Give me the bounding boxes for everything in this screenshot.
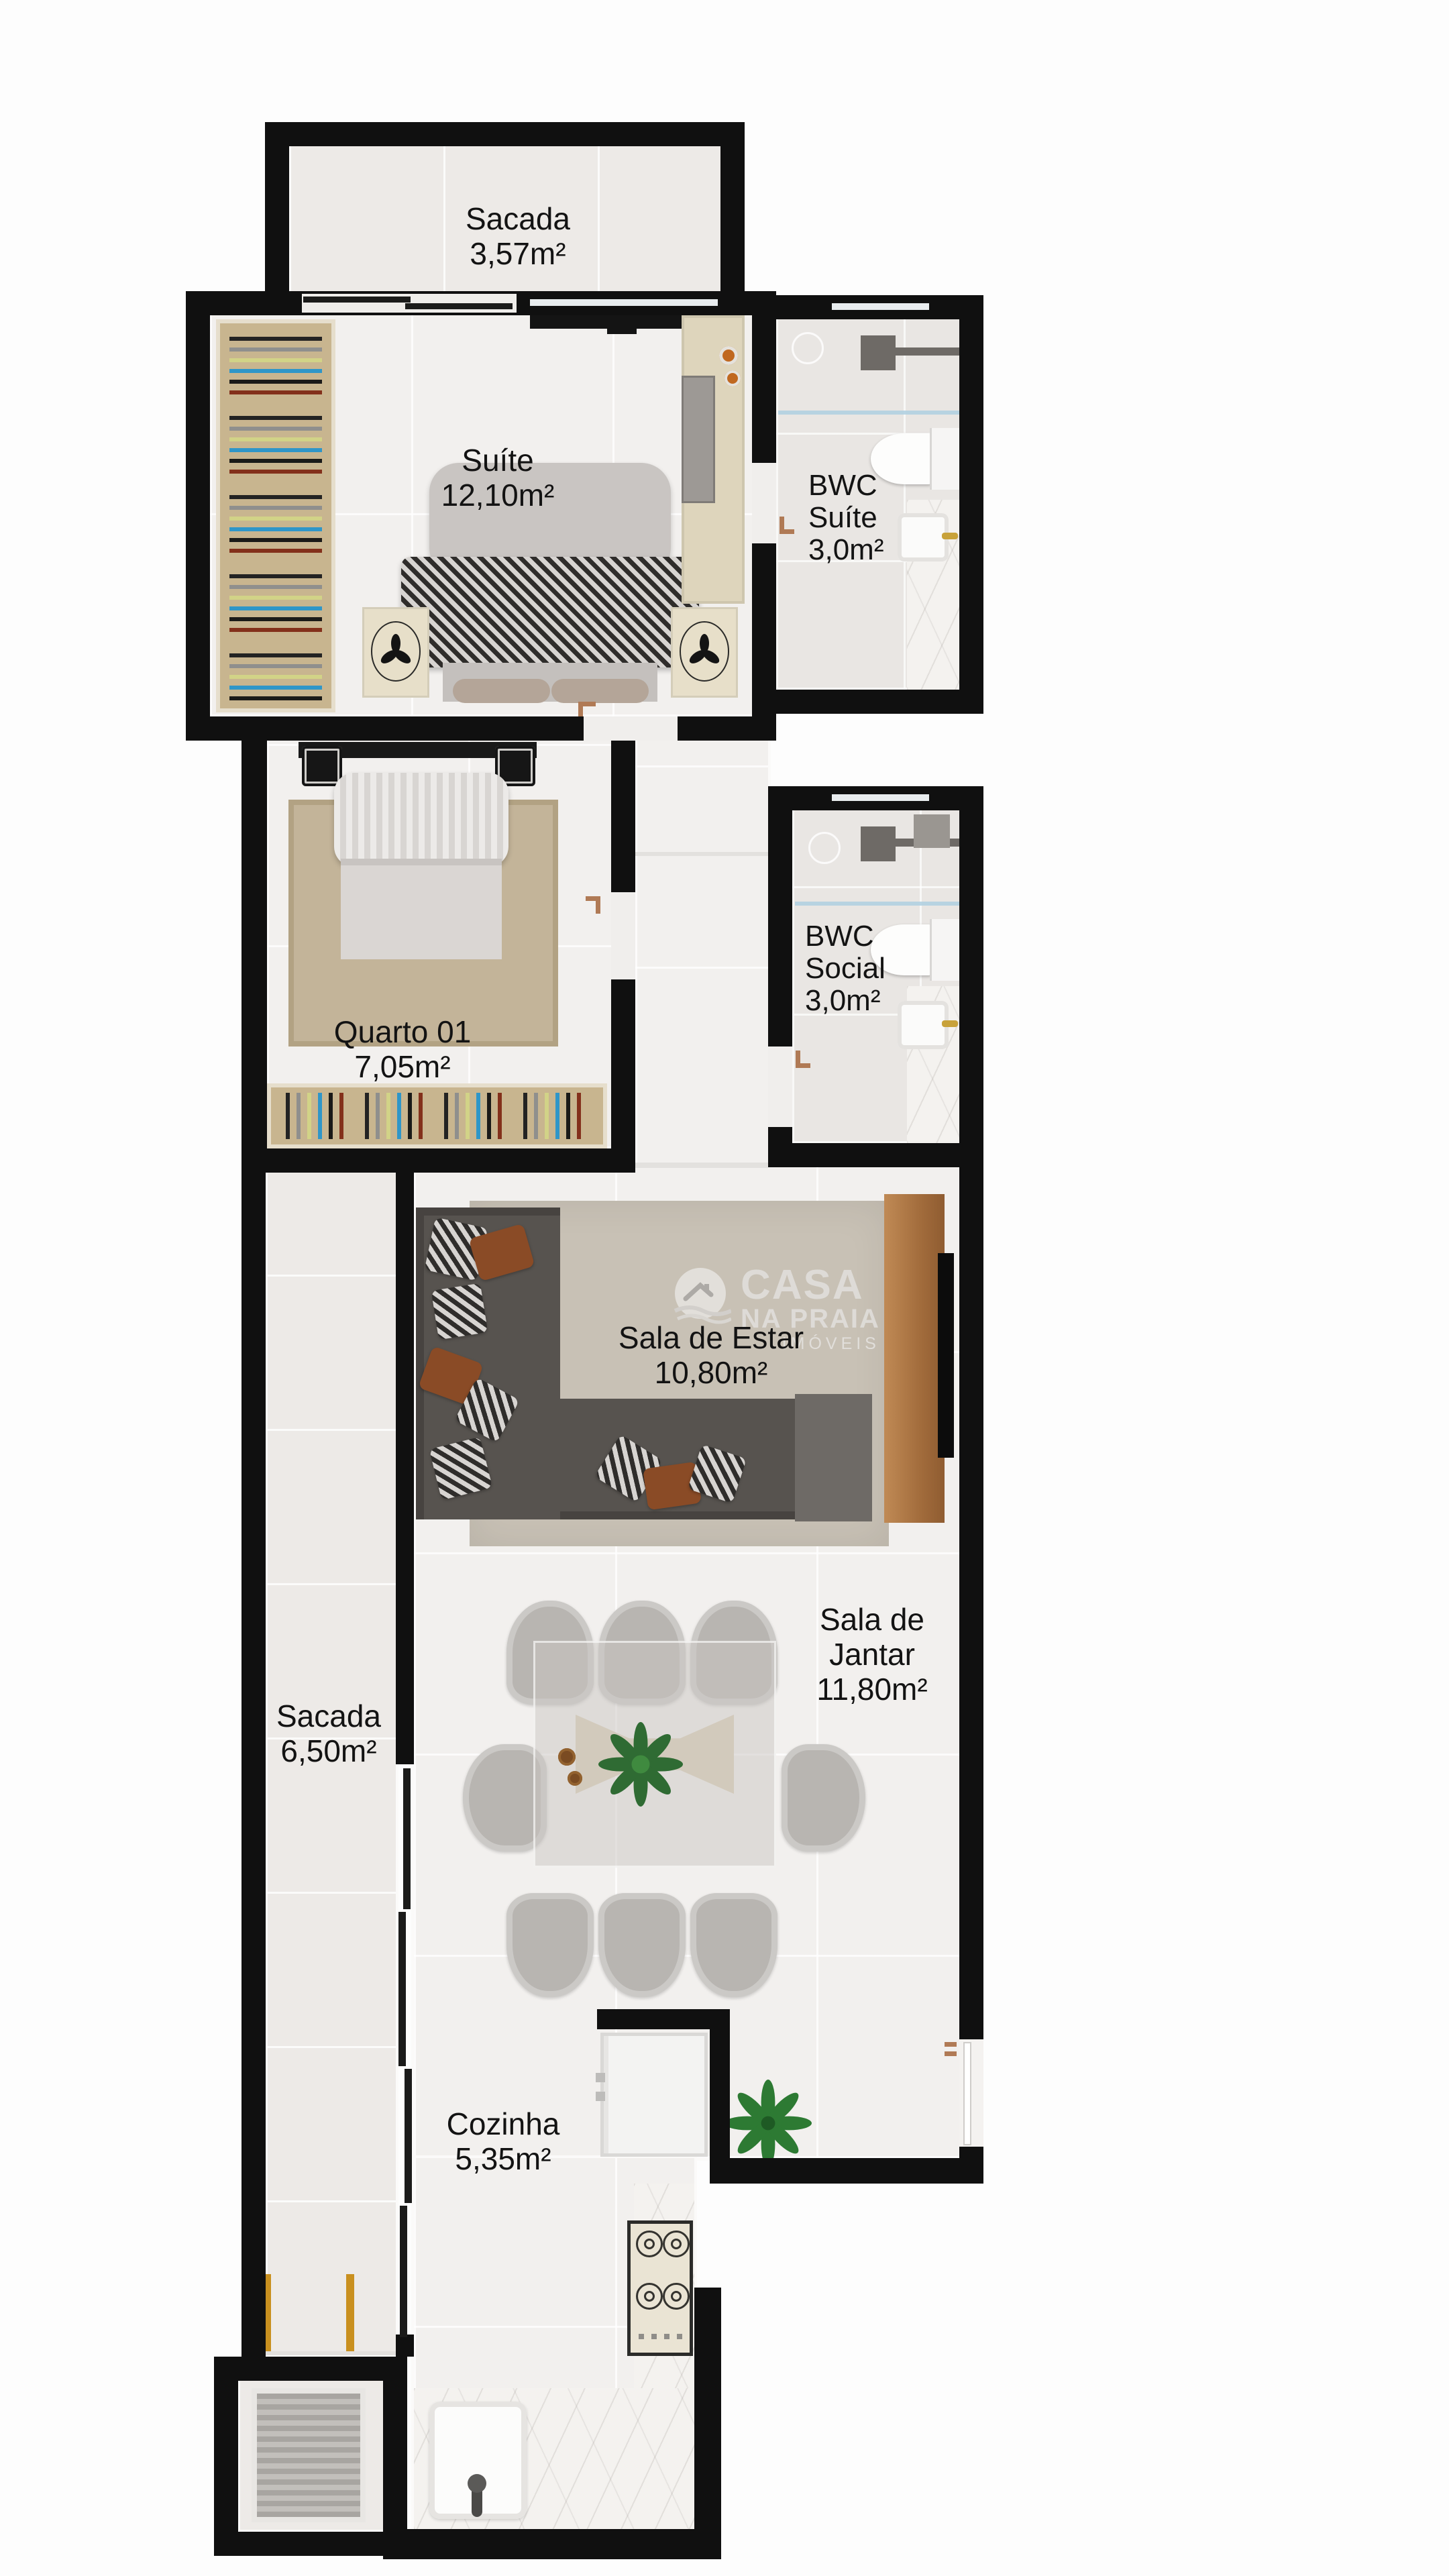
shower-head [861,335,896,370]
quarto-bed-pillow [334,773,508,867]
suite-closet [216,319,335,712]
sofa-pillow [431,1283,488,1340]
sliding-door-panel [403,1768,411,1909]
wall-fridge-nook-right [710,2009,730,2158]
fridge [600,2033,708,2157]
door-suite [584,716,678,741]
decor-bowl [724,370,741,386]
kitchen-plant [724,2080,812,2167]
wall-kitchen-east [694,2288,721,2559]
balcony-shelf-line [266,2351,396,2355]
corridor-beam-line [635,852,768,856]
cooktop-knobs [639,2334,683,2339]
wall-balcony-divider [396,1167,414,1764]
quarto-bed-body [341,859,502,959]
window-bwc-social [832,794,929,801]
room-area: 12,10m² [397,478,598,513]
floor-plan: CASA NA PRAIA IMÓVEIS [0,0,1449,2576]
window-suite [530,299,718,306]
wall-bwc-suite-right [959,295,983,714]
lamp-icon [678,618,731,685]
shower-glass [795,902,959,906]
room-name: Sacada [248,1699,409,1733]
ceiling-light [792,332,824,364]
ceiling-light [808,832,841,864]
suite-bed-cushion [453,679,550,703]
decor-bowl [719,346,738,365]
room-name: Jantar [792,1637,953,1672]
room-area: 7,05m² [295,1049,510,1084]
fridge-handle [596,2073,605,2082]
room-name: Cozinha [402,2106,604,2141]
door-hinge [780,529,794,534]
dining-chair [782,1744,865,1851]
washer [252,2388,366,2522]
dining-chair [690,1893,777,1997]
sofa-ottoman [795,1394,872,1521]
wall-kitchen-bottom [383,2529,721,2559]
table-plant [590,1714,691,1815]
quarto-speaker [302,746,342,786]
label-cozinha: Cozinha 5,35m² [402,2106,604,2176]
broom-handle [346,2274,354,2351]
quarto-wardrobe [267,1083,607,1148]
door-bwc-suite [752,463,776,543]
room-name: Suíte [397,443,598,478]
suite-bed-cushion [551,679,649,703]
tv-panel [884,1194,945,1523]
wall-quarto-left [241,716,267,1173]
sink-faucet-base [468,2474,486,2493]
room-area: 10,80m² [590,1355,832,1390]
room-area: 3,0m² [808,534,956,566]
label-bwc-suite: BWC Suíte 3,0m² [808,470,956,566]
wardrobe-hangers [279,1093,595,1139]
room-area: 3,0m² [805,985,959,1017]
door-hinge [578,702,583,716]
corridor-threshold [635,1163,768,1168]
room-name: BWC [808,470,956,502]
sliding-door-panel [398,1912,406,2066]
wall-bwc-social-bottom [768,1143,983,1167]
label-sala-jantar: Sala de Jantar 11,80m² [792,1602,953,1707]
wall-laundry-top [214,2357,407,2381]
wall-bwc-suite-bottom [776,690,983,714]
wall-suite-bottom [186,716,776,741]
wall-laundry-bottom [214,2532,407,2556]
door-bwc-social [768,1046,792,1127]
decor-bowl [558,1748,576,1766]
sliding-door-panel [303,297,411,303]
door-entry-leaf [965,2043,970,2144]
room-name: Social [805,953,959,985]
wall-suite-left [186,291,210,741]
fridge-handle [596,2092,605,2101]
cooktop [627,2220,693,2356]
brand-name-top: CASA [741,1267,880,1304]
wall-balcony-divider-stub [396,2334,414,2357]
wall-balcony-top [265,122,745,146]
wall-balcony-right [720,122,745,315]
wall-laundry-left [214,2357,238,2556]
door-hinge [945,2042,957,2047]
window-bwc-suite [832,303,929,310]
room-name: Sacada [417,201,619,236]
floor-corridor [635,741,768,1170]
shower-arm [894,347,959,356]
label-suite: Suíte 12,10m² [397,443,598,513]
wall-laundry-right [383,2357,407,2556]
label-sacada-left: Sacada 6,50m² [248,1699,409,1768]
room-area: 5,35m² [402,2141,604,2176]
room-area: 3,57m² [417,236,619,271]
wall-bwc-social-right [959,786,983,1167]
sliding-door-panel [405,303,513,309]
sliding-door-panel [400,2206,407,2337]
label-sacada-top: Sacada 3,57m² [417,201,619,271]
wall-living-right [959,1167,983,2039]
suite-nightstand [362,607,429,698]
label-sala-estar: Sala de Estar 10,80m² [590,1320,832,1390]
wall-dining-bottom [710,2158,983,2184]
suite-bench [682,376,715,503]
room-name: Sala de [792,1602,953,1637]
decor-bowl [568,1771,582,1786]
suite-nightstand [671,607,738,698]
room-area: 11,80m² [792,1672,953,1707]
dining-chair [598,1893,686,1997]
label-bwc-social: BWC Social 3,0m² [805,920,959,1017]
suite-bed-throw [401,557,699,667]
room-name: BWC [805,920,959,953]
bath-shelf [914,814,950,848]
door-entry [959,2039,983,2147]
shower-glass [778,411,959,415]
dining-chair [506,1893,594,1997]
faucet-icon [942,1020,958,1027]
lamp-icon [369,618,423,685]
door-hinge [586,896,600,901]
room-name: Sala de Estar [590,1320,832,1355]
door-hinge [945,2051,957,2056]
wall-quarto-bottom [241,1148,635,1173]
door-quarto [611,892,635,979]
room-name: Quarto 01 [295,1014,510,1049]
room-name: Suíte [808,502,956,534]
tv-screen [938,1253,954,1458]
room-area: 6,50m² [248,1733,409,1768]
closet-hangers [229,330,322,702]
shower-head [861,826,896,861]
wall-balcony-left [265,122,289,315]
suite-tv-mount [607,327,637,334]
label-quarto: Quarto 01 7,05m² [295,1014,510,1084]
door-hinge [796,1063,810,1068]
